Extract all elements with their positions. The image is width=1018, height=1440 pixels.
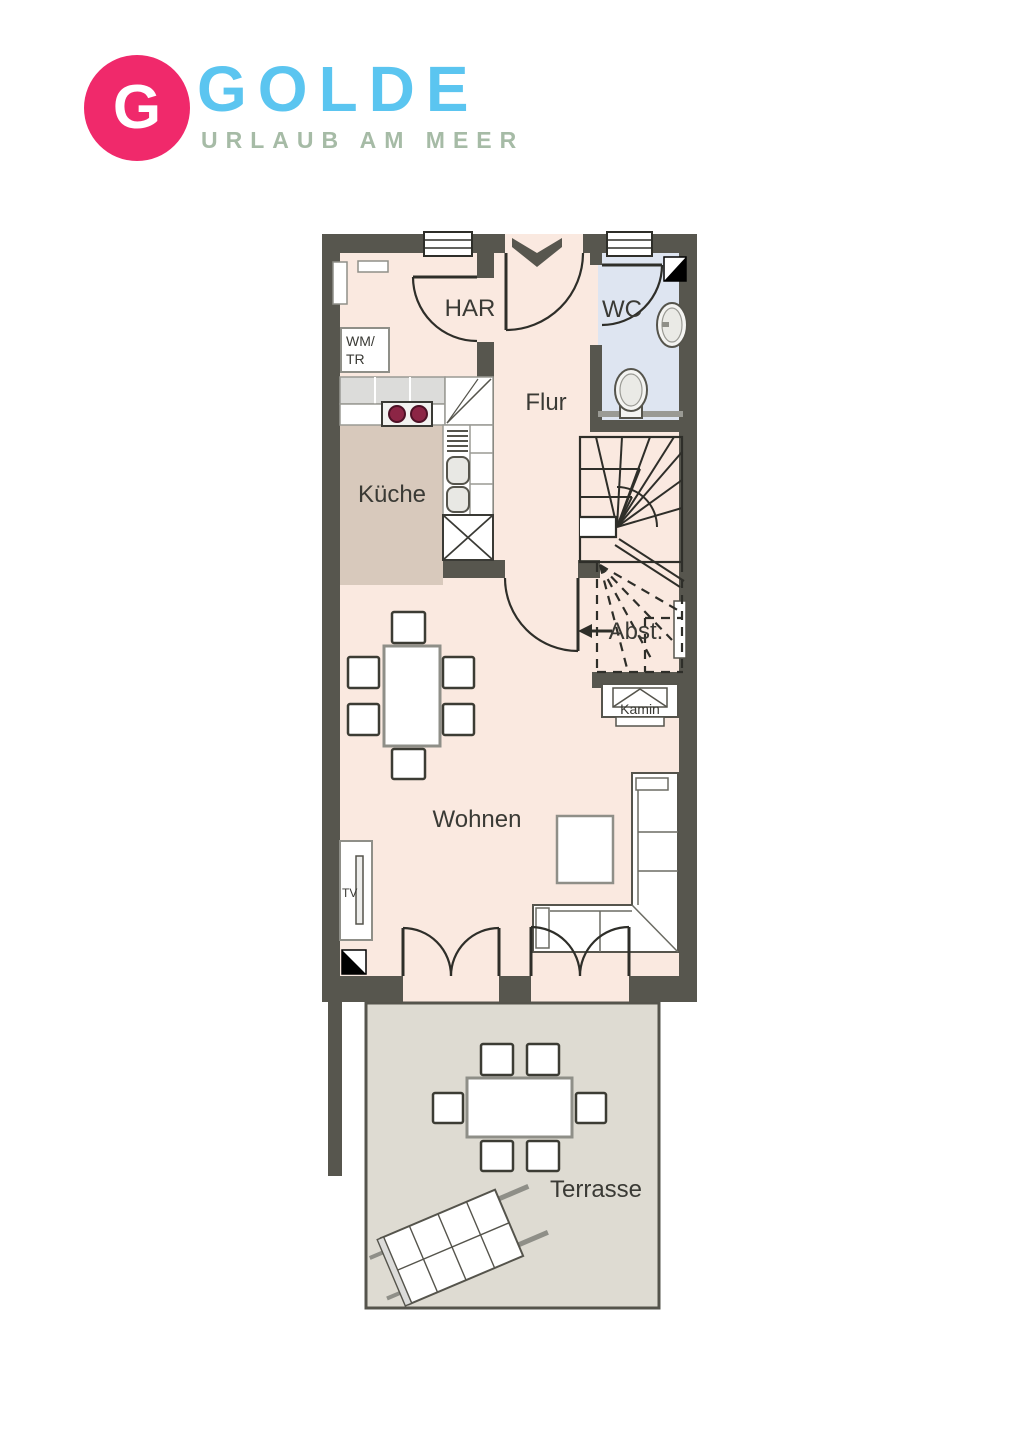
room-label-wc: WC [602,296,642,323]
wall-wc-left-top [590,253,602,265]
tv-board: TV [340,841,372,940]
wall-wc-left-bottom [590,345,602,432]
har-wall-niche [333,262,347,304]
garden-wall-stub [328,1002,342,1176]
tv-label: TV [342,886,357,900]
dining-table [384,646,440,746]
sink-basin-2 [447,487,469,512]
room-label-kamin: Kamin [620,701,660,717]
kitchen-corner-cabinet [445,377,493,425]
shaft-icon-wohnen [342,950,366,974]
wall-top-left [322,234,505,253]
stair-first-step [580,517,616,537]
floor-plan-page: G GOLDE URLAUB AM MEER [0,0,1018,1440]
kitchen-tall-cabinet [443,515,493,560]
faucet [662,322,669,327]
fireplace-step [616,717,664,726]
washer-label-line2: TR [346,351,365,367]
window-har [424,232,472,256]
kitchen-upper-cabinets [340,377,445,404]
coffee-table [557,816,613,883]
wall-left [322,234,340,1002]
washer-dryer: WM/ TR [341,328,389,372]
terrace-table [467,1078,572,1137]
toilet [615,369,647,418]
room-label-wohnen: Wohnen [433,806,522,833]
room-label-har: HAR [445,295,496,322]
wash-basin [657,303,687,347]
window-wc [607,232,652,256]
door1-opening-floor [403,976,499,1003]
room-label-kueche: Küche [358,481,426,508]
stove [382,402,432,426]
wall-har-divider [477,253,494,278]
wall-kitchen-stub [443,560,505,578]
room-label-flur: Flur [525,389,566,416]
room-label-terrasse: Terrasse [550,1176,642,1203]
door2-opening-floor [531,976,629,1003]
wall-wc-bottom [590,420,683,432]
wall-bottom-1 [322,976,403,1002]
har-top-niche [358,261,388,272]
wall-bottom-2 [499,976,531,1002]
shaft-icon-wc [664,257,686,281]
floor-plan-svg: WM/ TR [0,0,1018,1440]
washer-label-line1: WM/ [346,333,375,349]
sink-basin-1 [447,457,469,484]
kitchen-sink-unit [443,425,493,515]
wall-bottom-3 [629,976,697,1002]
room-label-abst: Abst. [609,618,664,645]
